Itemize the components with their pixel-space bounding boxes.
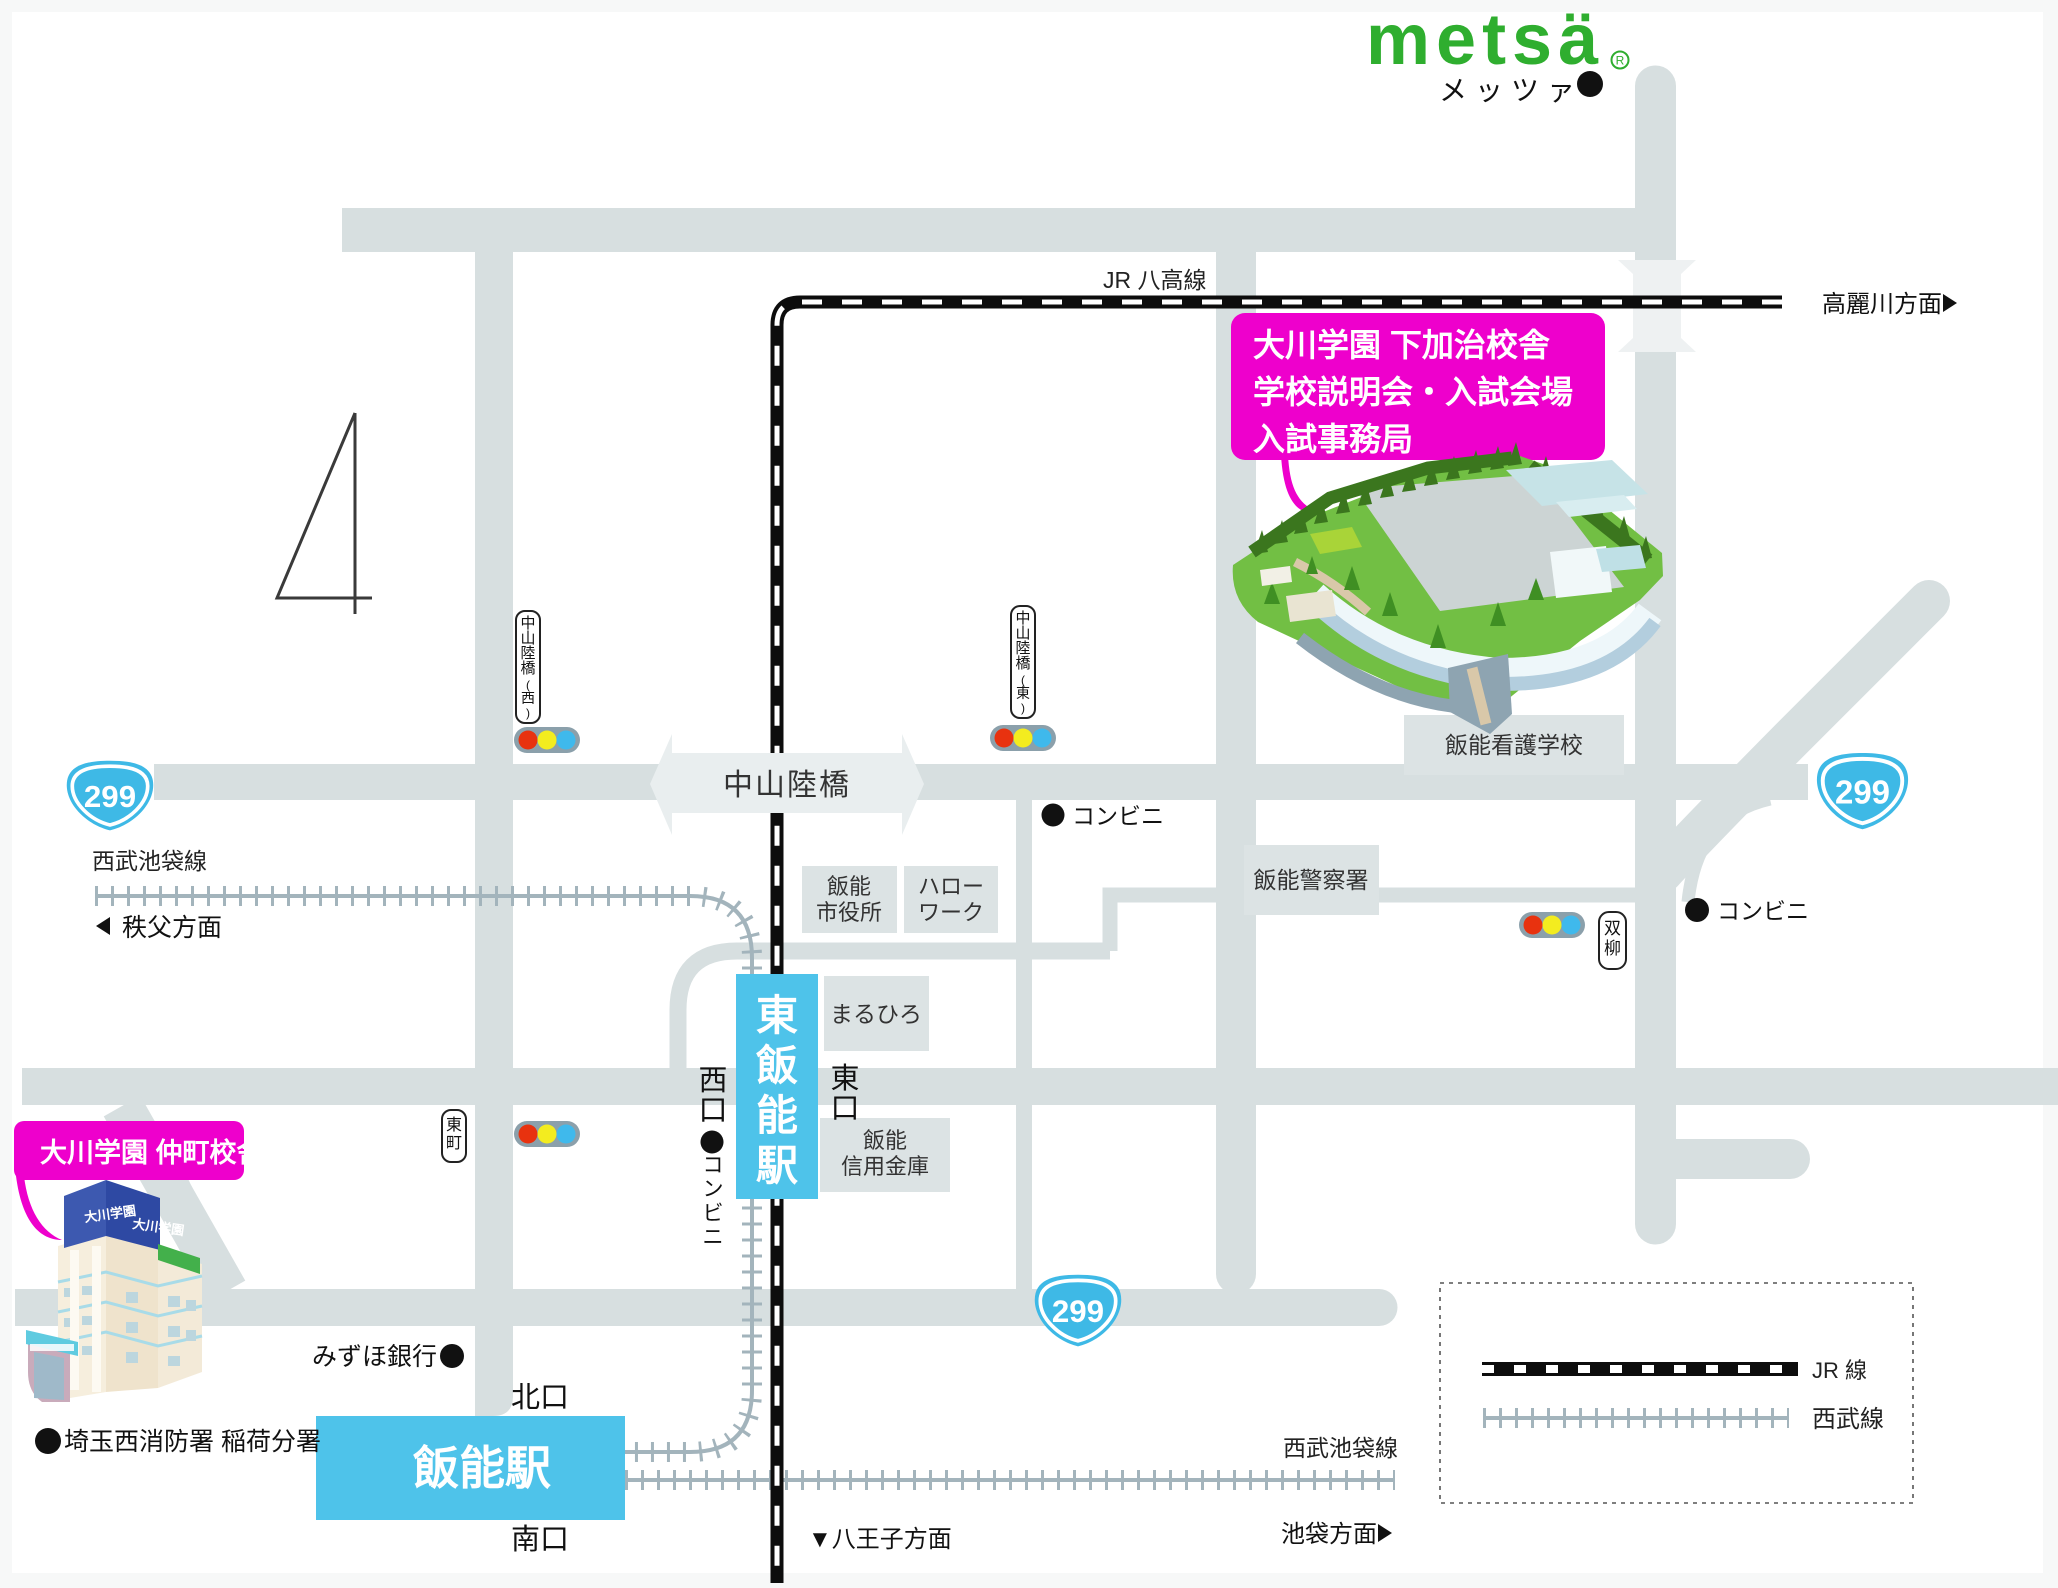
svg-text:秩父方面: 秩父方面 <box>122 914 222 942</box>
svg-text:南口: 南口 <box>511 1523 569 1556</box>
svg-text:みずほ銀行: みずほ銀行 <box>312 1343 437 1371</box>
svg-text:中山陸橋(東): 中山陸橋(東) <box>1015 610 1030 715</box>
svg-text:双柳: 双柳 <box>1604 919 1621 958</box>
svg-text:池袋方面: 池袋方面 <box>1281 1521 1377 1548</box>
svg-text:中山陸橋(西): 中山陸橋(西) <box>520 615 535 720</box>
svg-text:JR 八高線: JR 八高線 <box>1103 267 1207 293</box>
svg-text:JR 線: JR 線 <box>1812 1358 1867 1383</box>
svg-text:北口: 北口 <box>511 1382 569 1414</box>
svg-text:ハローワーク: ハローワーク <box>918 874 984 925</box>
svg-text:まるひろ: まるひろ <box>830 1001 922 1027</box>
svg-text:R: R <box>1616 54 1625 68</box>
svg-text:高麗川方面: 高麗川方面 <box>1822 291 1942 318</box>
svg-text:中山陸橋: 中山陸橋 <box>723 769 851 802</box>
svg-text:メッツァ: メッツァ <box>1439 75 1583 106</box>
svg-text:299: 299 <box>1052 1294 1104 1329</box>
svg-text:コンビニ: コンビニ <box>703 1154 724 1249</box>
svg-text:学校説明会・入試会場: 学校説明会・入試会場 <box>1253 374 1573 410</box>
svg-text:metsä: metsä <box>1366 0 1604 80</box>
svg-text:大川学園 仲町校舎: 大川学園 仲町校舎 <box>40 1137 264 1168</box>
svg-text:大川学園 下加治校舎: 大川学園 下加治校舎 <box>1253 327 1550 363</box>
svg-text:飯能駅: 飯能駅 <box>413 1442 551 1494</box>
svg-text:西武線: 西武線 <box>1812 1406 1884 1433</box>
svg-text:埼玉西消防署 稲荷分署: 埼玉西消防署 稲荷分署 <box>64 1428 321 1456</box>
svg-text:▼八王子方面: ▼八王子方面 <box>808 1526 952 1553</box>
svg-text:299: 299 <box>1835 774 1890 811</box>
svg-text:飯能警察署: 飯能警察署 <box>1254 867 1369 893</box>
svg-text:コンビニ: コンビニ <box>1072 803 1164 829</box>
svg-text:299: 299 <box>84 779 136 814</box>
svg-text:西口: 西口 <box>698 1065 727 1127</box>
svg-text:東口: 東口 <box>830 1062 859 1125</box>
svg-text:西武池袋線: 西武池袋線 <box>1283 1435 1398 1461</box>
svg-text:入試事務局: 入試事務局 <box>1253 421 1413 457</box>
svg-text:西武池袋線: 西武池袋線 <box>92 848 207 874</box>
svg-text:飯能看護学校: 飯能看護学校 <box>1445 732 1583 758</box>
svg-text:コンビニ: コンビニ <box>1717 898 1809 924</box>
